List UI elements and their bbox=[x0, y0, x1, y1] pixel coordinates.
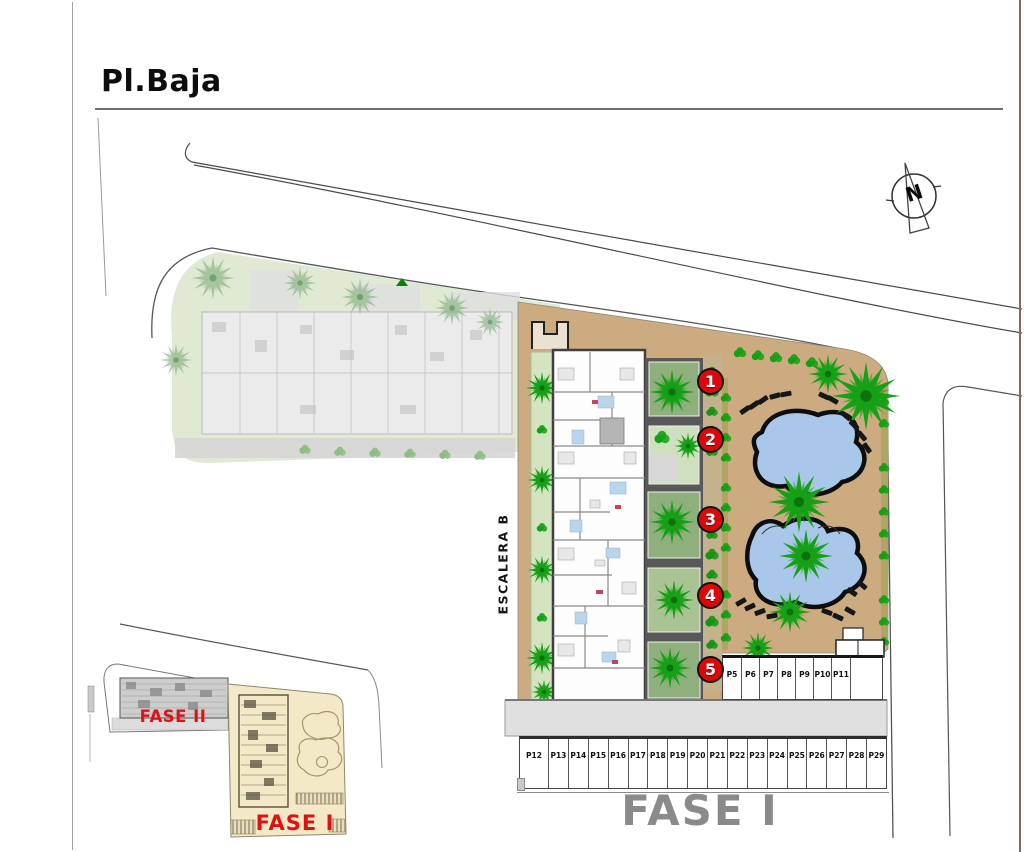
parking-stall-p16: P16 bbox=[609, 739, 629, 788]
unit-marker-4[interactable]: 4 bbox=[697, 582, 724, 609]
parking-stall-p28: P28 bbox=[847, 739, 867, 788]
page-border-left bbox=[72, 2, 73, 850]
parking-stall-label: P13 bbox=[550, 751, 566, 788]
unit-marker-2[interactable]: 2 bbox=[697, 426, 724, 453]
parking-stall-empty bbox=[851, 658, 882, 699]
parking-stall-label: P27 bbox=[829, 751, 845, 788]
parking-stall-label: P9 bbox=[799, 670, 810, 699]
unit-marker-5[interactable]: 5 bbox=[697, 656, 724, 683]
parking-stall-p9: P9 bbox=[796, 658, 814, 699]
parking-stall-label: P17 bbox=[630, 751, 646, 788]
title-rule bbox=[95, 108, 1003, 110]
parking-corner-step bbox=[517, 778, 525, 791]
page-title: Pl.Baja bbox=[101, 64, 222, 99]
parking-stall-p7: P7 bbox=[760, 658, 778, 699]
parking-stall-label: P16 bbox=[610, 751, 626, 788]
parking-stall-p15: P15 bbox=[589, 739, 609, 788]
parking-stall-label: P24 bbox=[769, 751, 785, 788]
parking-stall-label: P25 bbox=[789, 751, 805, 788]
parking-stall-p11: P11 bbox=[832, 658, 851, 699]
parking-stall-p18: P18 bbox=[648, 739, 668, 788]
parking-stall-p23: P23 bbox=[748, 739, 768, 788]
parking-stall-p24: P24 bbox=[768, 739, 788, 788]
terraces bbox=[645, 358, 703, 702]
parking-stall-p17: P17 bbox=[629, 739, 649, 788]
parking-stall-label: P11 bbox=[833, 670, 849, 699]
parking-stall-label: P21 bbox=[709, 751, 725, 788]
site-plan-page: Pl.Baja N ESCALERA B FASE I FASE II FASE… bbox=[0, 0, 1024, 852]
parking-stall-label: P12 bbox=[526, 751, 542, 788]
parking-stall-p8: P8 bbox=[778, 658, 796, 699]
page-border-right bbox=[1019, 0, 1021, 852]
parking-stall-p26: P26 bbox=[807, 739, 827, 788]
parking-stall-p27: P27 bbox=[827, 739, 847, 788]
parking-stall-label: P5 bbox=[727, 670, 738, 699]
fase1-main-label: FASE I bbox=[570, 786, 830, 835]
parking-stall-p13: P13 bbox=[549, 739, 569, 788]
parking-stall-p20: P20 bbox=[688, 739, 708, 788]
unit-marker-3[interactable]: 3 bbox=[697, 506, 724, 533]
parking-stall-label: P8 bbox=[781, 670, 792, 699]
parking-stall-p22: P22 bbox=[728, 739, 748, 788]
parking-stall-label: P28 bbox=[849, 751, 865, 788]
parking-stall-p5: P5 bbox=[723, 658, 742, 699]
parking-stall-label: P7 bbox=[763, 670, 774, 699]
parking-stall-label: P14 bbox=[570, 751, 586, 788]
parking-stall-label: P18 bbox=[650, 751, 666, 788]
unit-marker-1[interactable]: 1 bbox=[697, 368, 724, 395]
main-building bbox=[553, 350, 645, 702]
parking-row-p12-p29: P12P13P14P15P16P17P18P19P20P21P22P23P24P… bbox=[519, 736, 887, 789]
driveway bbox=[505, 700, 887, 736]
parking-stall-p21: P21 bbox=[708, 739, 728, 788]
parking-stall-label: P20 bbox=[690, 751, 706, 788]
parking-stall-p10: P10 bbox=[814, 658, 832, 699]
parking-row-p5-p11: P5P6P7P8P9P10P11 bbox=[722, 655, 883, 700]
parking-stall-p29: P29 bbox=[867, 739, 886, 788]
property-line-left bbox=[98, 118, 106, 296]
parking-stall-p25: P25 bbox=[788, 739, 808, 788]
parking-stall-label: P23 bbox=[749, 751, 765, 788]
parking-stall-p6: P6 bbox=[742, 658, 760, 699]
parking-stall-label: P26 bbox=[809, 751, 825, 788]
parking-underline bbox=[517, 792, 889, 793]
inset-fase2-label: FASE II bbox=[130, 707, 216, 726]
parking-stall-label: P22 bbox=[729, 751, 745, 788]
parking-stall-label: P19 bbox=[670, 751, 686, 788]
inset-map bbox=[88, 624, 382, 837]
escalera-b-label: ESCALERA B bbox=[496, 497, 512, 632]
parking-stall-p14: P14 bbox=[569, 739, 589, 788]
parking-stall-label: P6 bbox=[745, 670, 756, 699]
inset-fase1-label: FASE I bbox=[249, 811, 341, 835]
parking-stall-p19: P19 bbox=[668, 739, 688, 788]
parking-stall-label: P15 bbox=[590, 751, 606, 788]
parking-stall-label: P10 bbox=[815, 670, 831, 699]
parking-stall-label: P29 bbox=[868, 751, 884, 788]
